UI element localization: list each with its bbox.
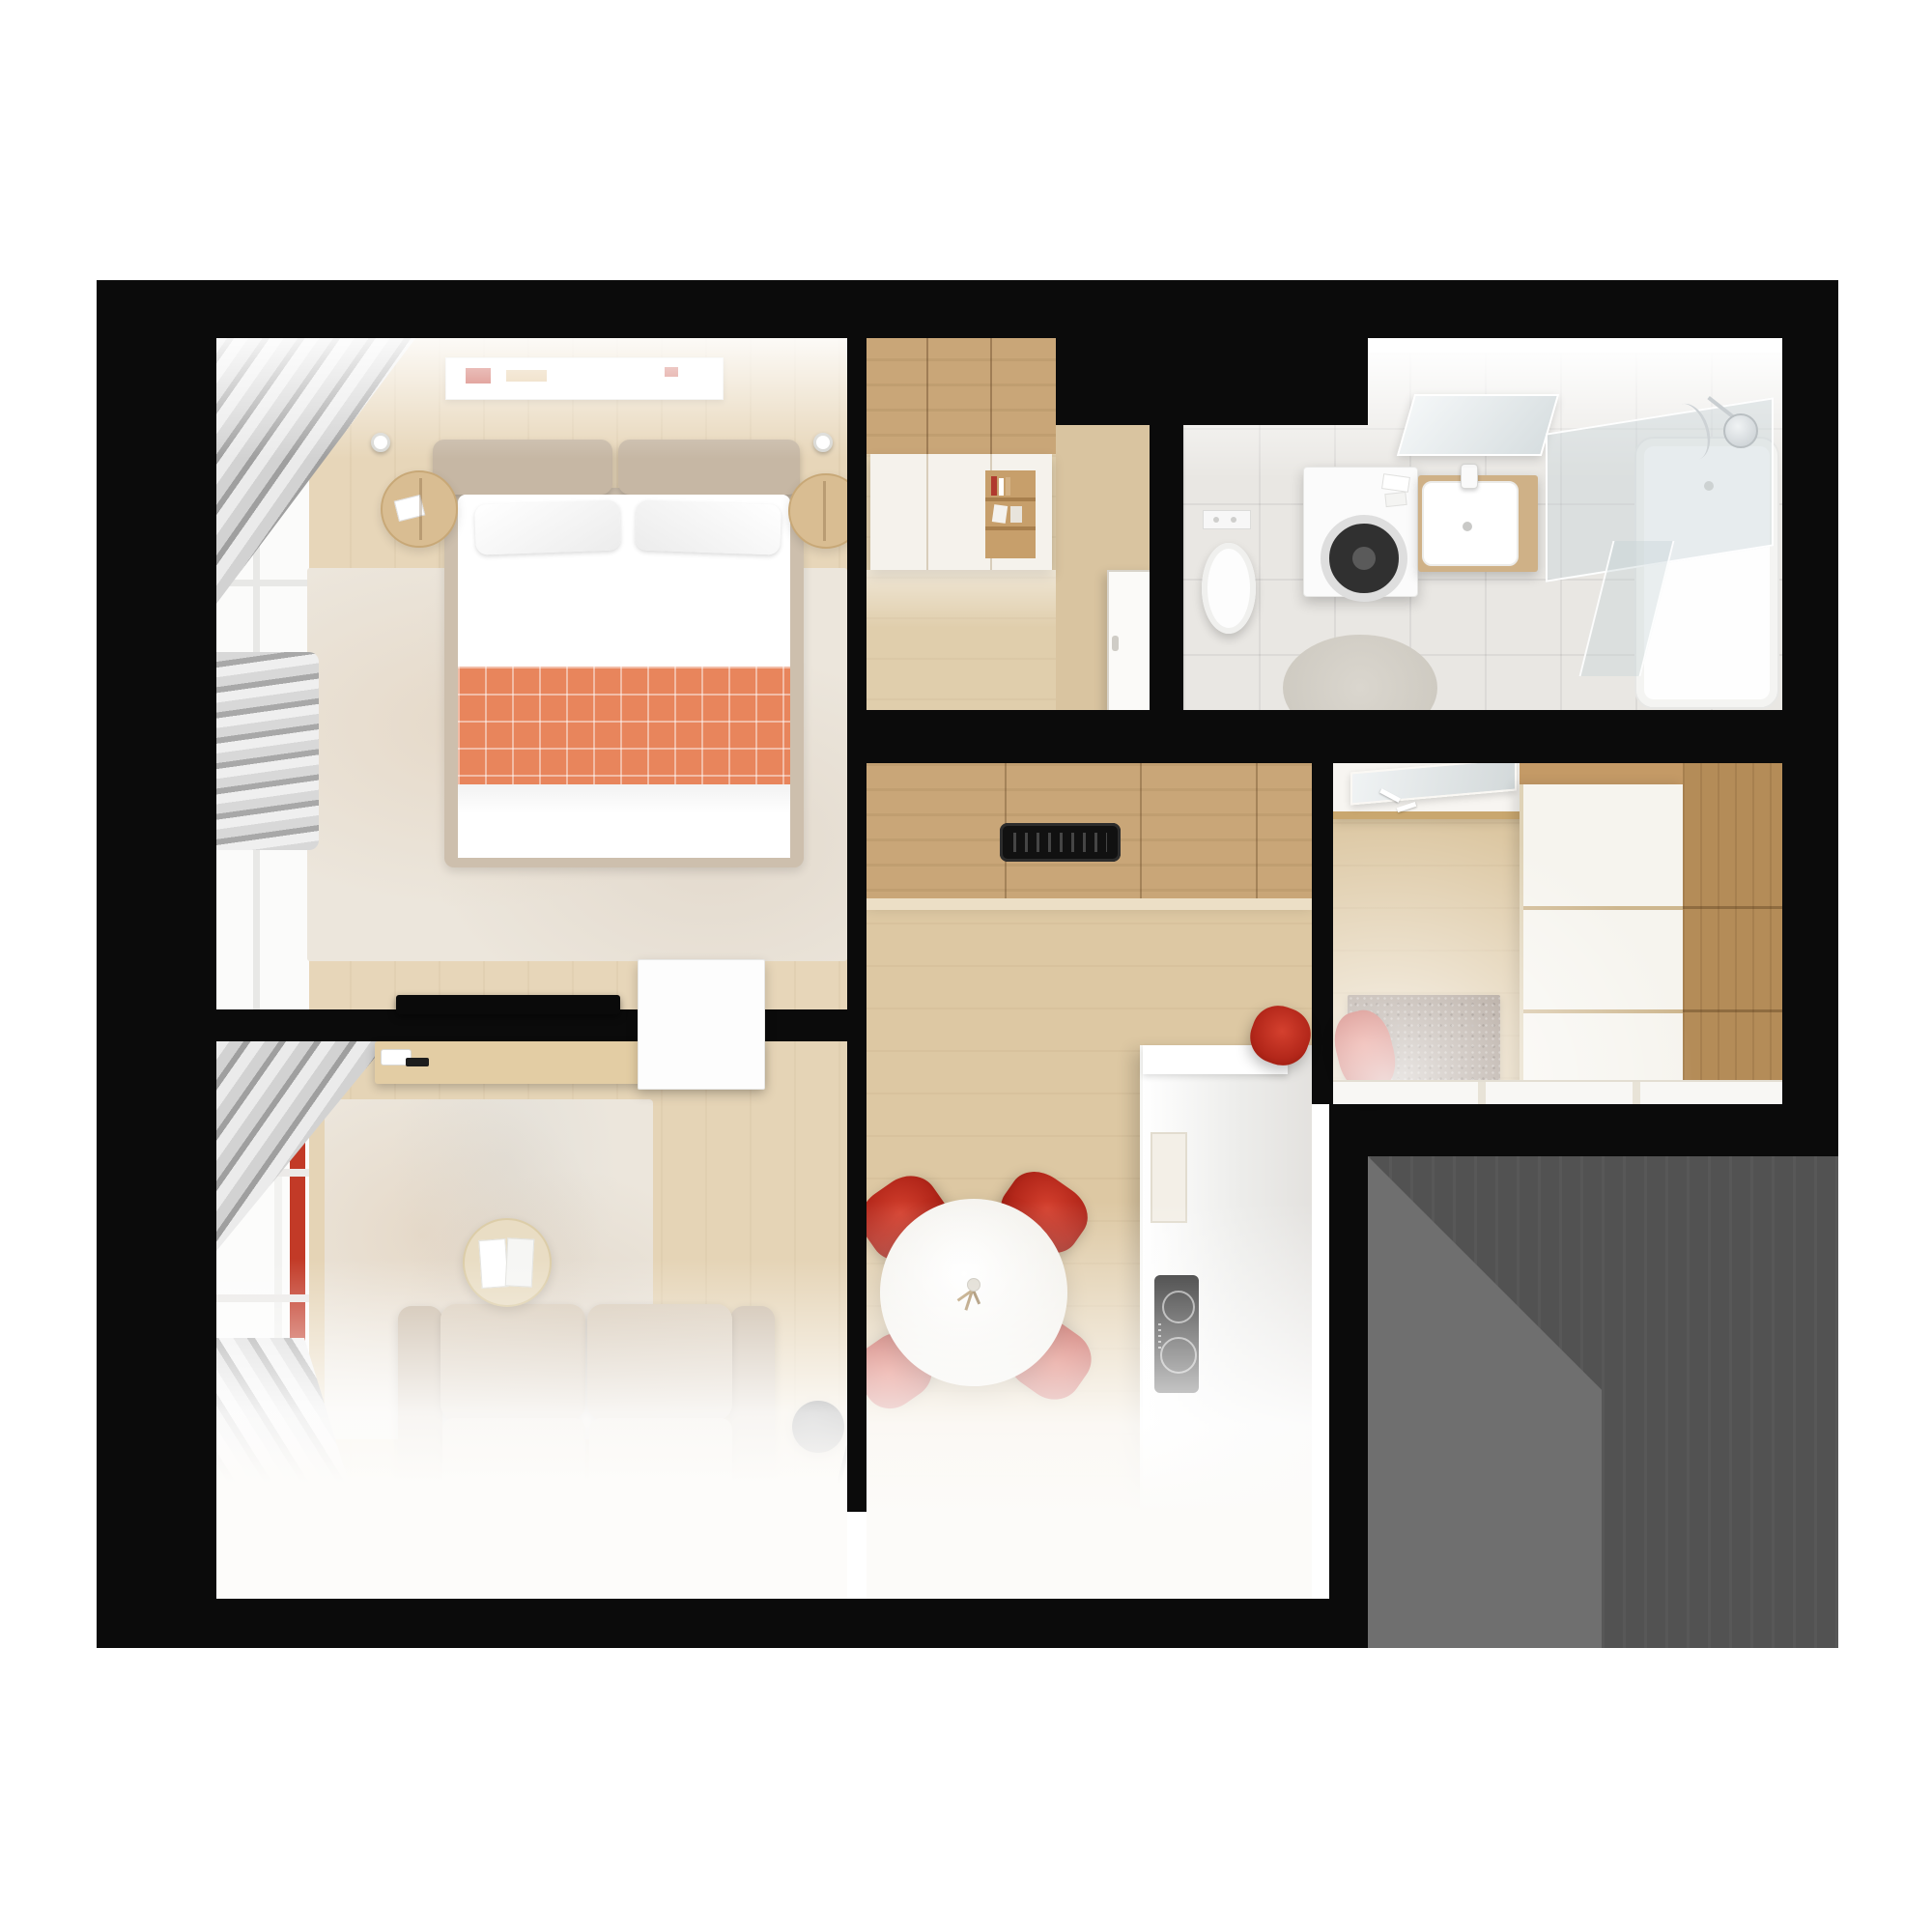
room-living <box>216 1009 847 1603</box>
nightstand-left <box>381 470 458 548</box>
wall-bath-notch <box>1150 338 1368 425</box>
artwork-gold-detail <box>506 370 547 382</box>
remote-control <box>406 1058 429 1066</box>
bed-runner-coral <box>458 667 790 784</box>
entrance-door <box>1107 570 1150 715</box>
wall-bottom <box>97 1599 1368 1648</box>
peninsula-open-niche <box>1151 1132 1187 1223</box>
washer-drum-hub <box>1352 547 1376 570</box>
washing-machine <box>1303 467 1418 597</box>
sill-mullion <box>1633 1082 1640 1104</box>
artwork-red-detail <box>665 367 678 377</box>
floor-lamp-head <box>792 1401 844 1453</box>
detergent-item <box>1384 492 1406 507</box>
room-bedroom <box>216 333 847 1009</box>
wardrobe-seam <box>990 333 992 454</box>
bedroom-curtain-top <box>216 333 419 604</box>
flush-button <box>1213 517 1219 523</box>
wardrobe2-seam <box>1520 906 1686 910</box>
wardrobe-doors <box>870 454 1052 570</box>
induction-hob <box>1154 1275 1199 1393</box>
shelf-line <box>985 497 1036 501</box>
book-spine <box>999 478 1004 496</box>
shelf-line <box>985 526 1036 530</box>
door-handle <box>1112 636 1119 651</box>
wardrobe2-edge <box>1520 784 1523 1104</box>
wall-right <box>1782 280 1838 1156</box>
sofa-back-cushion <box>440 1304 585 1420</box>
nightstand-shelf-line <box>823 481 826 541</box>
hallway-glow <box>867 570 1056 628</box>
wall-bedroom-hall <box>847 333 867 1512</box>
wall-kitchen-room2 <box>1312 763 1333 1104</box>
headboard-cushion-right <box>618 440 800 495</box>
wall-left <box>97 280 216 1648</box>
hob-ring <box>1162 1291 1195 1323</box>
wardrobe2-seam <box>1520 1009 1686 1013</box>
sink-drain <box>1463 522 1472 531</box>
wall-artwork <box>445 357 724 400</box>
wood-column-seam <box>1683 906 1782 909</box>
centerpiece-base <box>967 1278 980 1292</box>
wall-hall-notch <box>1056 338 1150 425</box>
sofa-armrest-left <box>398 1306 442 1495</box>
wood-column-seam <box>1683 1009 1782 1012</box>
terrace-door-sill <box>1333 1080 1782 1104</box>
kitchen-cabinet-front <box>867 898 1312 910</box>
sink-faucet <box>1461 464 1478 489</box>
detergent-item <box>1381 473 1410 493</box>
bed-foot-sheet <box>458 784 790 858</box>
open-book-page <box>505 1237 535 1287</box>
sofa-seat-cushion <box>589 1418 732 1503</box>
book-spine <box>991 476 997 496</box>
wardrobe-seam <box>926 333 928 454</box>
hob-controls <box>1158 1323 1161 1349</box>
extractor-slot <box>1000 823 1121 862</box>
wall-top <box>97 280 1838 338</box>
wardrobe2-doors <box>1520 784 1686 1104</box>
floor-lamp-base <box>842 1536 847 1548</box>
floor-mat <box>425 1541 706 1603</box>
extractor-grille <box>1013 833 1107 852</box>
sofa <box>398 1304 775 1511</box>
sofa-back-cushion <box>587 1304 732 1420</box>
wall-terrace-left <box>1329 1104 1368 1648</box>
artwork-red-detail <box>466 368 491 384</box>
washer-drum <box>1321 515 1407 602</box>
window-mullion <box>216 1294 309 1302</box>
book-spine <box>1006 477 1010 496</box>
wardrobe-shelf-niche <box>985 470 1036 558</box>
tv-screen <box>396 995 620 1014</box>
counter-seam <box>1256 763 1258 898</box>
headboard-cushion-left <box>433 440 612 495</box>
ceiling-spotlight <box>813 433 833 452</box>
room-kitchen-dining <box>867 710 1312 1603</box>
wall-mid-horizontal <box>867 710 1782 763</box>
floor-lamp-arm <box>823 1445 847 1540</box>
bed-pillow-left <box>474 499 621 554</box>
bathroom-round-rug <box>1283 635 1437 710</box>
media-cabinet <box>638 959 765 1090</box>
sofa-armrest-right <box>730 1306 775 1495</box>
dining-table <box>880 1199 1067 1386</box>
toilet-flush-plate <box>1203 510 1251 529</box>
wall-terrace-top <box>1329 1104 1838 1156</box>
wardrobe2-top-strip <box>1520 763 1686 784</box>
nightstand-shelf-line <box>419 478 422 540</box>
wardrobe-door-seam <box>926 454 928 570</box>
flush-button <box>1231 517 1236 523</box>
toilet-bowl <box>1202 543 1256 634</box>
bed-pillow-right <box>635 499 781 554</box>
sink <box>1422 481 1519 566</box>
shower-head <box>1723 413 1758 448</box>
hob-ring <box>1160 1337 1197 1374</box>
ceiling-spotlight <box>371 433 390 452</box>
sofa-seat-cushion <box>442 1418 585 1503</box>
coffee-table <box>463 1218 552 1307</box>
counter-seam <box>1140 763 1142 898</box>
floor-plan-canvas <box>0 0 1932 1932</box>
bathroom-mirror <box>1397 394 1559 456</box>
wardrobe2-wood-column <box>1683 763 1782 1104</box>
book-spine <box>1010 506 1022 523</box>
book-spine <box>992 504 1008 524</box>
room-second-room <box>1333 737 1782 1104</box>
wardrobe-top <box>867 333 1056 454</box>
sill-mullion <box>1478 1082 1486 1104</box>
bedroom-curtain-bottom <box>216 652 319 850</box>
peninsula-counter <box>1140 1045 1312 1575</box>
